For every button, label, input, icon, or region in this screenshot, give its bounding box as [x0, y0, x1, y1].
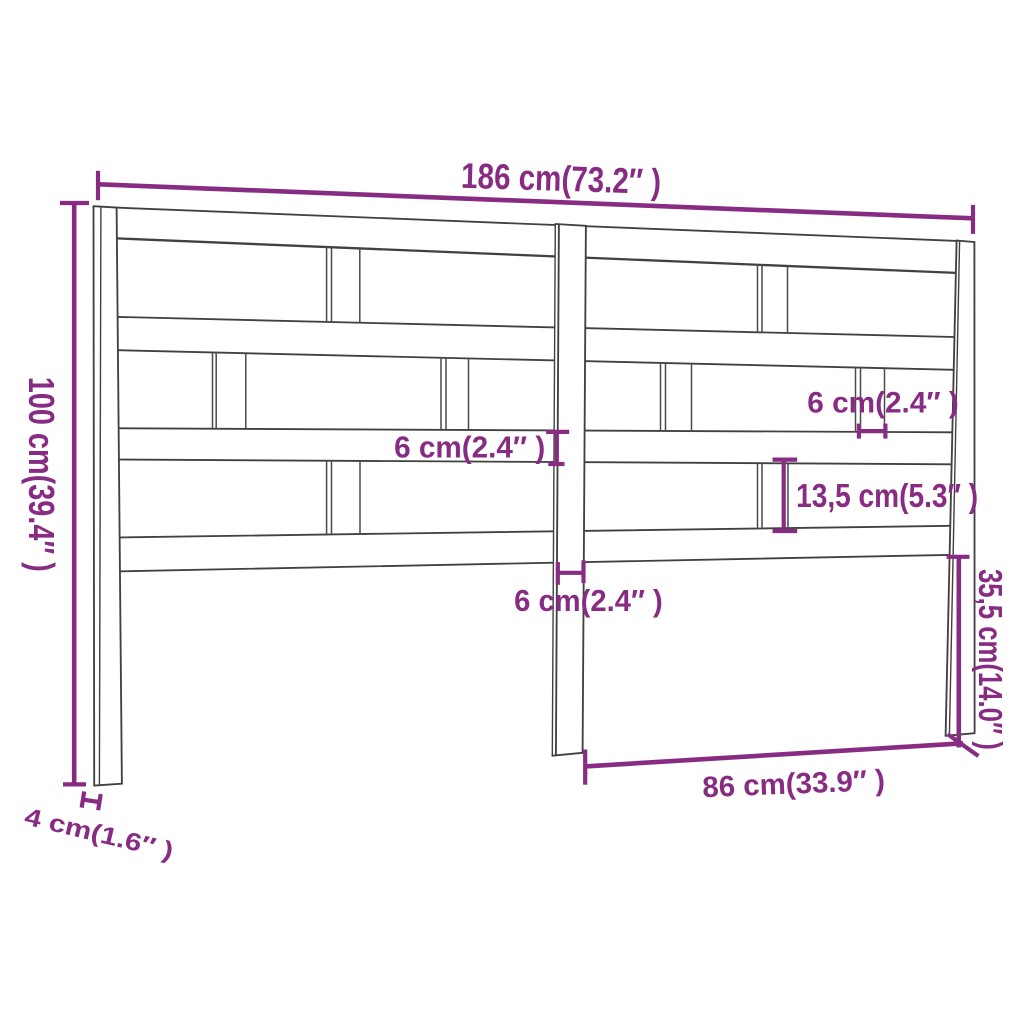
svg-text:186 cm(73.2″ ): 186 cm(73.2″ ): [461, 156, 662, 202]
svg-text:100 cm(39.4″ ): 100 cm(39.4″ ): [21, 377, 62, 572]
svg-text:6 cm(2.4″ ): 6 cm(2.4″ ): [394, 429, 545, 464]
svg-text:6 cm(2.4″ ): 6 cm(2.4″ ): [514, 583, 663, 618]
svg-text:13,5 cm(5.3″ ): 13,5 cm(5.3″ ): [796, 477, 978, 514]
svg-text:35,5 cm(14.0″ ): 35,5 cm(14.0″ ): [972, 569, 1009, 750]
svg-text:6 cm(2.4″ ): 6 cm(2.4″ ): [807, 386, 959, 419]
